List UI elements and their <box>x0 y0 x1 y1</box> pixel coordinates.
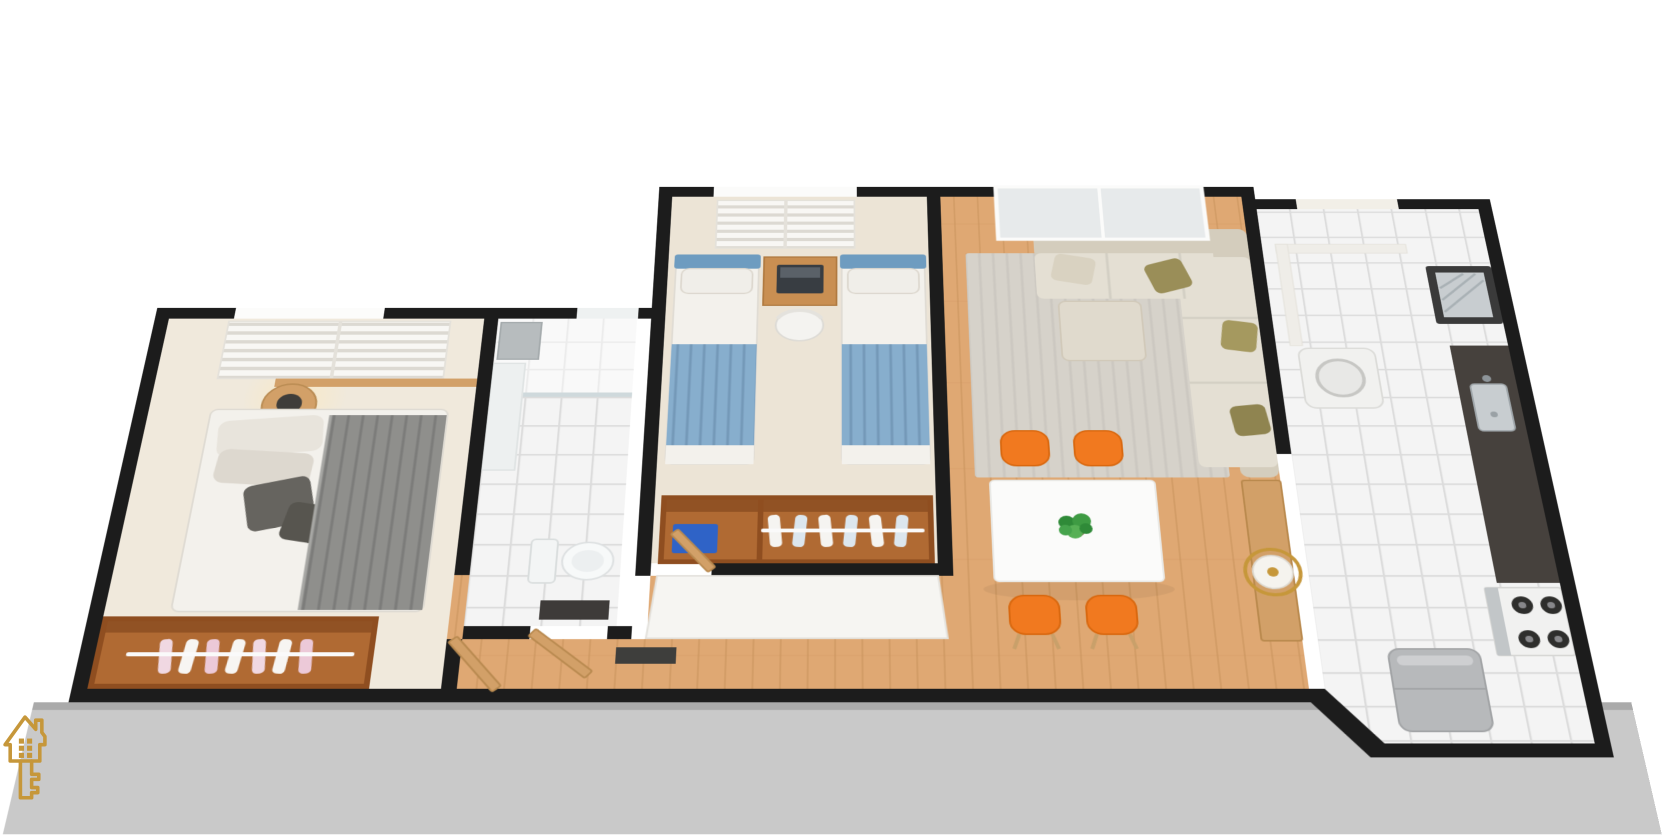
orange-chair <box>1009 596 1061 635</box>
olive-pillow <box>1220 319 1258 353</box>
laundry-tank <box>1425 266 1503 324</box>
wall-bathroom-bottom <box>607 626 632 639</box>
single-bed-left <box>663 254 761 464</box>
wall-niche <box>497 323 542 360</box>
pillow <box>681 269 753 294</box>
orange-chair <box>1085 596 1138 635</box>
service-half-wall <box>1275 244 1407 253</box>
washing-machine <box>1298 348 1385 408</box>
house-key-icon <box>2 712 48 809</box>
wall-door-stub <box>522 689 545 703</box>
wardrobe-rail <box>761 529 925 533</box>
wall-bathroom-bottom <box>462 626 530 639</box>
wall-bedroom2-bottom <box>711 563 938 576</box>
brand-logo <box>2 712 48 809</box>
wardrobe-front-face <box>646 576 948 638</box>
window-blinds <box>716 200 855 248</box>
white-chair <box>775 310 823 341</box>
bedroom2-window-opening <box>714 187 857 197</box>
service-door-opening <box>1296 199 1399 209</box>
orange-chair <box>1073 431 1123 466</box>
floorplan-stage <box>0 0 1680 800</box>
apartment-3d-plan <box>0 181 1663 838</box>
blue-headboard <box>840 254 926 268</box>
master-window-opening <box>234 308 385 319</box>
wardrobe-rail <box>126 652 355 656</box>
refrigerator <box>1387 649 1494 731</box>
wall-kitchen-bottom <box>1369 743 1614 757</box>
floorplan-svg <box>0 181 1663 838</box>
key-shaft <box>20 761 38 798</box>
double-bed <box>171 409 449 611</box>
single-bed-right <box>840 254 932 464</box>
window-blinds <box>218 321 451 378</box>
orange-chair <box>1000 431 1050 466</box>
house-windows <box>19 739 32 758</box>
ottoman <box>1058 301 1146 360</box>
panoramic-window <box>995 187 1207 239</box>
blue-headboard <box>674 254 761 268</box>
four-burner-stove <box>1484 588 1575 656</box>
house-outline <box>5 717 45 761</box>
bathroom-window-opening <box>576 308 638 319</box>
pillow <box>848 269 919 294</box>
wall-bottom-exterior <box>68 689 1326 703</box>
door-threshold <box>615 647 676 663</box>
dark-bath-mat <box>539 600 610 619</box>
study-desk <box>763 257 837 305</box>
open-wardrobe-with-clothes <box>87 616 379 688</box>
